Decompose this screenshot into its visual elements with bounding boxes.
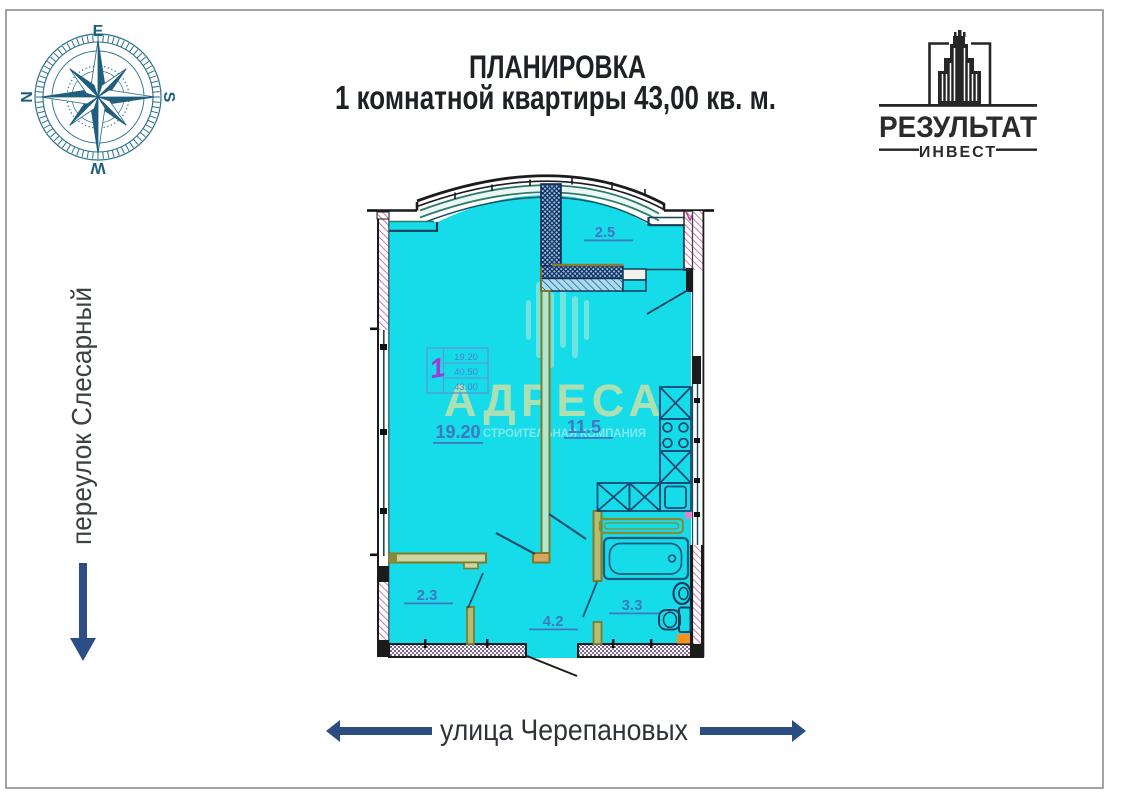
svg-text:W: W (90, 159, 106, 176)
svg-text:2.5: 2.5 (595, 225, 615, 241)
svg-text:19.20: 19.20 (454, 352, 478, 363)
svg-text:43.00: 43.00 (454, 382, 478, 393)
svg-text:4.2: 4.2 (543, 613, 564, 630)
svg-text:E: E (93, 23, 104, 40)
svg-text:N: N (19, 91, 36, 103)
svg-text:переулок Слесарный: переулок Слесарный (66, 287, 97, 545)
svg-text:11.5: 11.5 (567, 417, 601, 437)
svg-text:ИНВЕСТ: ИНВЕСТ (919, 144, 997, 161)
svg-text:3.3: 3.3 (622, 597, 643, 614)
svg-text:40.50: 40.50 (454, 367, 478, 378)
svg-text:19.20: 19.20 (435, 422, 480, 442)
svg-text:улица Черепановых: улица Черепановых (440, 714, 688, 747)
svg-text:1 комнатной квартиры 43,00 кв.: 1 комнатной квартиры 43,00 кв. м. (335, 79, 776, 116)
svg-text:РЕЗУЛЬТАТ: РЕЗУЛЬТАТ (879, 111, 1037, 144)
svg-text:S: S (160, 92, 177, 103)
svg-text:2.3: 2.3 (417, 587, 438, 604)
